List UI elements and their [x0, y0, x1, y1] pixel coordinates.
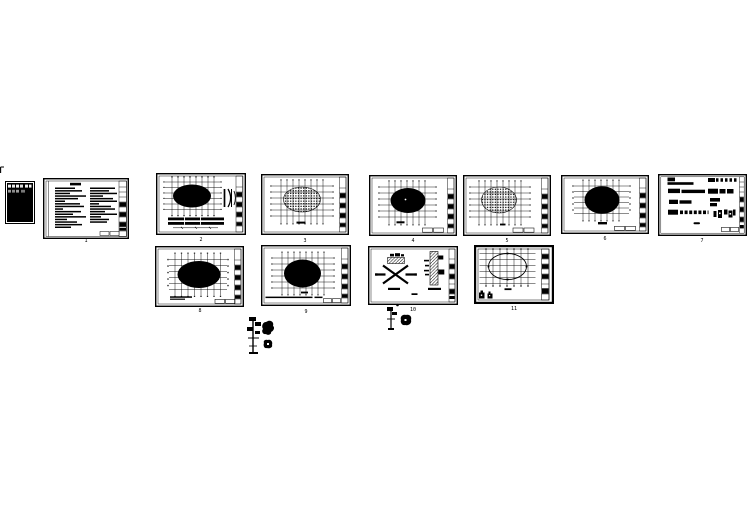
sheet-label: 9 [286, 309, 326, 315]
plan-opening [405, 199, 407, 201]
sheet-detail-i-thumbnail[interactable] [368, 246, 458, 305]
sheet-plan-h-thumbnail[interactable] [261, 245, 351, 306]
sheet-plan-a-thumbnail[interactable] [156, 173, 246, 235]
notes-title-bar [70, 183, 81, 186]
cad-preview-canvas: 1 [0, 0, 749, 530]
sheet-label: 2 [181, 237, 221, 243]
sheet-label: 8 [180, 308, 220, 314]
sheet-plan-j-thumbnail[interactable] [474, 245, 554, 304]
building-footprint [284, 187, 321, 212]
sheet-plan-d-thumbnail[interactable] [463, 175, 551, 236]
drawing-title-bar [297, 222, 306, 224]
building-footprint [178, 261, 221, 288]
building-footprint [173, 185, 211, 208]
notes-sheet-drawing [43, 178, 129, 239]
drawing-title-bar [412, 293, 418, 295]
corner-tick-mark [0, 166, 5, 174]
plan-d-drawing [463, 175, 551, 236]
legend-f-drawing [658, 174, 747, 236]
sheet-plan-e-thumbnail[interactable] [561, 175, 649, 234]
shrub-detail-drawing [260, 319, 276, 351]
tree-detail-small-drawing [385, 303, 399, 333]
sheet-label: 6 [585, 236, 625, 242]
shrub-detail-small-figure [399, 313, 413, 328]
plan-a-drawing [156, 173, 246, 235]
building-footprint [585, 186, 620, 214]
tree-detail-small-figure [385, 303, 399, 333]
sheet-label: 4 [393, 238, 433, 244]
sheet-label: 7 [682, 238, 722, 244]
sheet-plan-c-thumbnail[interactable] [369, 175, 457, 236]
drawing-title-bar [397, 221, 405, 223]
plan-e-drawing [561, 175, 649, 234]
building-footprint [284, 260, 321, 288]
drawing-title-bar [598, 222, 607, 224]
plan-c-drawing [369, 175, 457, 236]
title-block-strip [542, 249, 550, 300]
corner-tick-drawing [0, 166, 5, 174]
drawing-title-bar [500, 224, 506, 226]
sheet-label: 1 [66, 238, 106, 244]
sheet-label: 5 [487, 238, 527, 244]
shrub-detail-small-drawing [399, 313, 413, 328]
plan-g-drawing [155, 246, 244, 307]
drawing-title-bar [301, 292, 308, 294]
sheet-label: 3 [285, 238, 325, 244]
plan-h-drawing [261, 245, 351, 306]
plan-j-drawing [474, 245, 554, 304]
detail-i-drawing [368, 246, 458, 305]
sheet-label: 11 [494, 306, 534, 312]
sheet-legend-f-thumbnail[interactable] [658, 174, 747, 236]
building-footprint [482, 187, 517, 213]
sheet-notes-thumbnail[interactable] [43, 178, 129, 239]
drawing-title-bar [505, 288, 512, 290]
sheet-cover-thumbnail[interactable] [5, 181, 35, 224]
sheet-plan-b-thumbnail[interactable] [261, 174, 349, 235]
building-footprint [391, 188, 426, 213]
plan-b-drawing [261, 174, 349, 235]
cover-sheet-drawing [5, 181, 35, 224]
sheet-plan-g-thumbnail[interactable] [155, 246, 244, 307]
shrub-detail-figure [260, 319, 276, 351]
